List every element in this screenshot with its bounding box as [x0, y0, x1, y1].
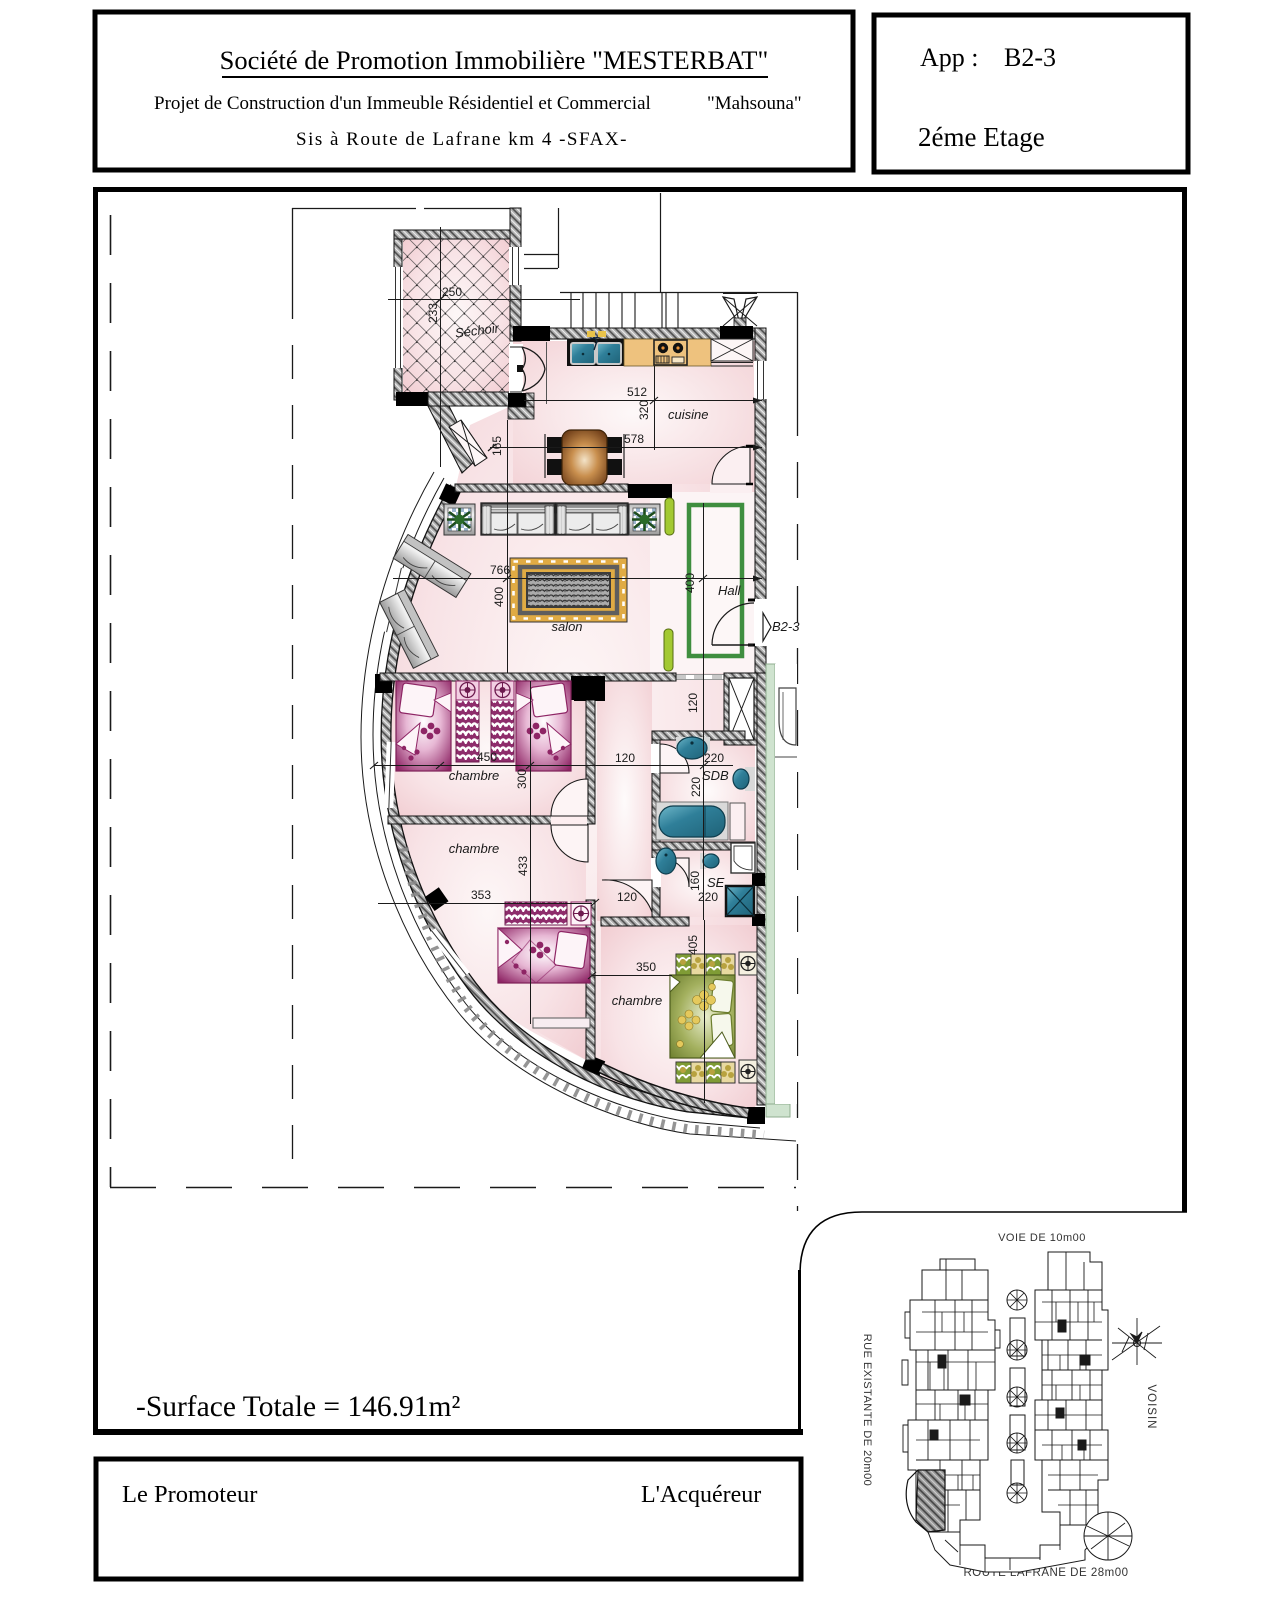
- svg-text:400: 400: [492, 587, 506, 607]
- svg-text:450: 450: [477, 750, 497, 764]
- svg-text:cuisine: cuisine: [668, 407, 708, 422]
- svg-text:320: 320: [637, 400, 651, 420]
- svg-text:220: 220: [689, 777, 703, 797]
- svg-text:512: 512: [627, 385, 647, 399]
- svg-text:VOIE DE 10m00: VOIE DE 10m00: [998, 1232, 1086, 1244]
- svg-text:433: 433: [516, 856, 530, 876]
- svg-text:250: 250: [442, 285, 462, 299]
- svg-text:766: 766: [490, 563, 510, 577]
- svg-text:SE: SE: [707, 875, 725, 890]
- svg-text:Société de Promotion Immobiliè: Société de Promotion Immobilière "MESTER…: [220, 45, 769, 75]
- svg-text:300: 300: [515, 769, 529, 789]
- svg-text:B2-3: B2-3: [1004, 43, 1056, 72]
- svg-text:B2-3: B2-3: [772, 619, 800, 634]
- svg-text:2éme Etage: 2éme Etage: [918, 122, 1045, 152]
- svg-text:120: 120: [615, 751, 635, 765]
- svg-text:120: 120: [686, 693, 700, 713]
- svg-text:Projet de Construction d'un Im: Projet de Construction d'un Immeuble Rés…: [154, 93, 651, 114]
- svg-text:App :: App :: [920, 43, 979, 72]
- svg-text:120: 120: [617, 890, 637, 904]
- svg-text:220: 220: [698, 890, 718, 904]
- svg-text:chambre: chambre: [449, 768, 500, 783]
- svg-text:RUE EXISTANTE DE 20m00: RUE EXISTANTE DE 20m00: [861, 1334, 873, 1487]
- svg-text:L'Acquéreur: L'Acquéreur: [641, 1482, 761, 1508]
- svg-text:Sis à Route de Lafrane km 4 -: Sis à Route de Lafrane km 4 -SFAX-: [296, 129, 628, 150]
- svg-text:233: 233: [426, 303, 440, 323]
- svg-text:salon: salon: [551, 619, 582, 634]
- svg-text:SDB: SDB: [702, 768, 729, 783]
- svg-text:"Mahsouna": "Mahsouna": [707, 93, 802, 114]
- svg-text:chambre: chambre: [449, 841, 500, 856]
- svg-text:165: 165: [490, 436, 504, 456]
- svg-text:578: 578: [624, 432, 644, 446]
- svg-text:-Surface Totale = 146.91m²: -Surface Totale = 146.91m²: [136, 1391, 460, 1423]
- svg-text:350: 350: [636, 960, 656, 974]
- svg-text:chambre: chambre: [612, 993, 663, 1008]
- svg-text:353: 353: [471, 888, 491, 902]
- svg-text:405: 405: [686, 935, 700, 955]
- svg-text:Hall: Hall: [718, 583, 742, 598]
- svg-text:Le Promoteur: Le Promoteur: [122, 1481, 257, 1508]
- svg-text:160: 160: [688, 871, 702, 891]
- svg-text:VOISIN: VOISIN: [1145, 1385, 1157, 1430]
- svg-text:400: 400: [683, 573, 697, 593]
